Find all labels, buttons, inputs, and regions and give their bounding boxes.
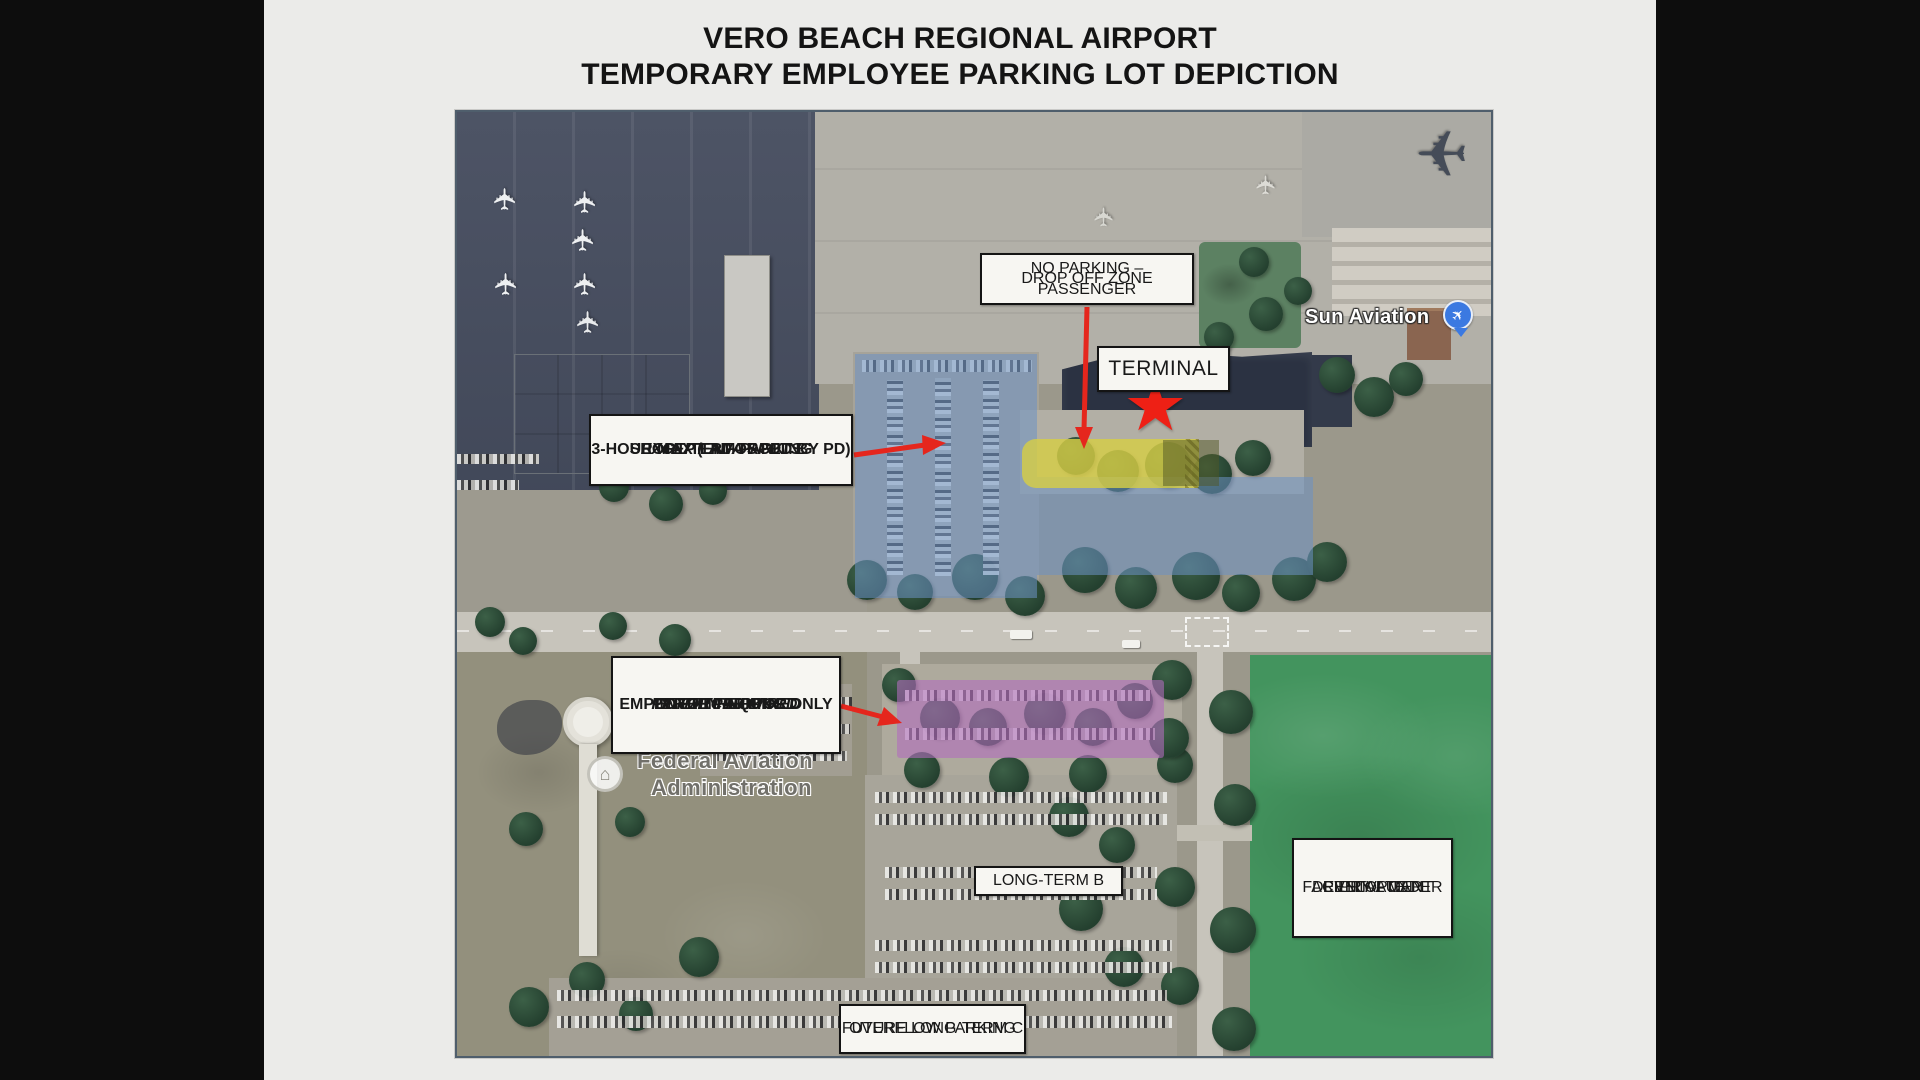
page: VERO BEACH REGIONAL AIRPORT TEMPORARY EM… xyxy=(264,0,1656,1080)
pin-airplane-glyph: ✈ xyxy=(1448,305,1468,325)
rental-car-facility-label: RENTAL CAR FACILITY - UNDER PRIVATE DEVE… xyxy=(1292,838,1453,938)
letterbox-right xyxy=(1656,0,1920,1080)
terminal-text: TERMINAL xyxy=(1108,355,1218,383)
terminal-label: TERMINAL xyxy=(1097,346,1230,392)
no-parking-label: NO PARKING – PASSENGER DROP OFF ZONE xyxy=(980,253,1194,305)
faa-icon-glyph: ⌂ xyxy=(600,764,611,785)
short-term-parking-overlay xyxy=(855,354,1037,598)
screen: VERO BEACH REGIONAL AIRPORT TEMPORARY EM… xyxy=(0,0,1920,1080)
overflow-line2: FUTURE LONG-TERM C xyxy=(842,1018,1023,1039)
page-subtitle: TEMPORARY EMPLOYEE PARKING LOT DEPICTION xyxy=(264,58,1656,92)
letterbox-left xyxy=(0,0,264,1080)
interim-line4: ENFORCED BY PD xyxy=(655,694,798,715)
page-title: VERO BEACH REGIONAL AIRPORT xyxy=(264,22,1656,56)
short-term-line3: EXCEPT ADA SPOTS xyxy=(641,439,802,460)
government-building-icon: ⌂ xyxy=(587,756,623,792)
long-term-b-text: LONG-TERM B xyxy=(993,870,1104,891)
faa-map-text-line2: Administration xyxy=(651,775,812,801)
airplane-map-pin-icon: ✈ xyxy=(1443,300,1473,330)
airport-satellite-map: ✈✈✈✈✈✈✈✈✈ xyxy=(455,110,1493,1058)
short-term-parking-overlay-east xyxy=(1037,477,1313,575)
employee-parking-overlay xyxy=(897,680,1164,758)
short-term-parking-label: SHORT-TERM PARKING 3-HOUR MAX (ENFORCED … xyxy=(589,414,853,486)
terminal-canopy-shadow xyxy=(1163,440,1219,486)
long-term-b-label: LONG-TERM B xyxy=(974,866,1123,896)
rental-line4: DEVELOPMENT xyxy=(1312,877,1433,898)
interim-employee-parking-label: INTERIM AIRPORT EMPLOYEE PARKING ONLY PE… xyxy=(611,656,841,754)
no-parking-line2: DROP OFF ZONE xyxy=(1021,268,1152,289)
overflow-parking-label: OVERFLOW PARKING FUTURE LONG-TERM C xyxy=(839,1004,1026,1054)
sun-aviation-map-text: Sun Aviation xyxy=(1305,306,1429,329)
